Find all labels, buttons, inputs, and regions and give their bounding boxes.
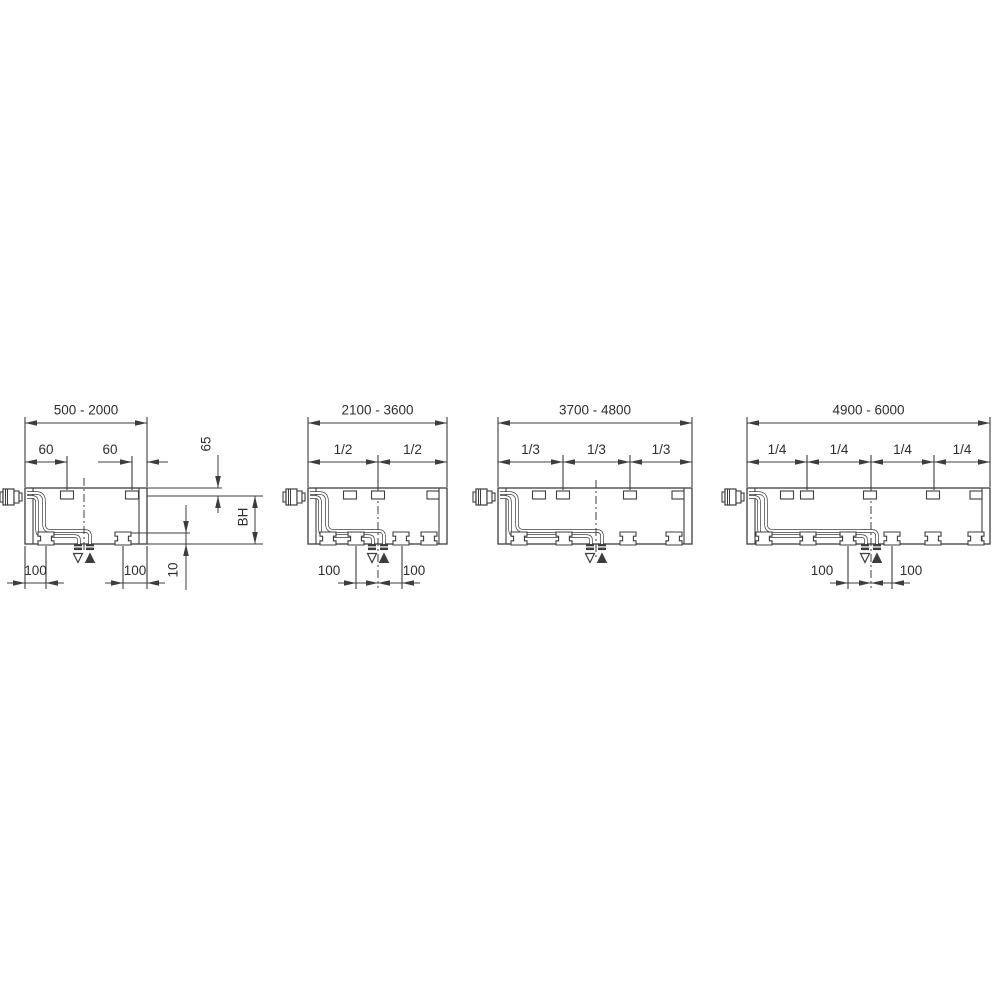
dimension-arrow — [366, 580, 378, 586]
flow-direction-icon — [86, 554, 95, 563]
fraction-label: 1/4 — [953, 442, 972, 457]
dimension-arrow — [978, 459, 990, 465]
dimension-arrow — [55, 459, 67, 465]
mounting-foot — [320, 532, 336, 545]
dimension-arrow — [215, 476, 221, 488]
wall-bracket — [61, 491, 74, 499]
wall-bracket-end — [970, 491, 982, 499]
dimension-arrow — [551, 459, 563, 465]
connection-stub — [873, 548, 881, 551]
dimension-arrow — [498, 459, 510, 465]
dimension-arrow — [344, 580, 356, 586]
connection-stub — [86, 548, 94, 551]
dimension-arrow — [859, 580, 871, 586]
mounting-foot — [756, 532, 772, 545]
dimension-arrow — [836, 580, 848, 586]
wall-bracket — [126, 491, 139, 499]
flow-direction-icon — [873, 554, 882, 563]
sub-dimension-label: 60 — [102, 442, 117, 457]
range-label: 2100 - 3600 — [341, 403, 413, 418]
connection-stub — [586, 548, 594, 551]
fraction-label: 1/2 — [403, 442, 422, 457]
bottom-dimension-label: 100 — [318, 563, 341, 578]
fraction-label: 1/4 — [768, 442, 787, 457]
dimension-arrow — [366, 459, 378, 465]
dimension-arrow — [618, 459, 630, 465]
mounting-foot — [38, 532, 54, 545]
connection-stub — [74, 548, 82, 551]
dimension-arrow — [795, 459, 807, 465]
mounting-foot — [800, 532, 816, 545]
range-label: 500 - 2000 — [54, 403, 119, 418]
mounting-foot — [556, 532, 572, 545]
mounting-foot — [393, 532, 409, 545]
dimension-arrow — [978, 420, 990, 426]
wall-bracket — [927, 491, 940, 499]
connection-stub — [861, 544, 869, 546]
return-direction-icon — [368, 554, 377, 563]
side-dimension-label: 65 — [199, 436, 214, 451]
diagram-length-3700-4800: 3700 - 48001/31/31/3 — [473, 403, 692, 563]
dimension-arrow — [183, 544, 189, 556]
dimension-arrow — [25, 459, 37, 465]
side-dimension-label: 10 — [166, 562, 181, 577]
connection-stub — [598, 544, 606, 546]
dimension-arrow — [435, 459, 447, 465]
range-label: 4900 - 6000 — [832, 403, 904, 418]
radiator-dimension-diagram: 500 - 2000606010010065BH102100 - 36001/2… — [0, 0, 1000, 1000]
fraction-label: 1/4 — [830, 442, 849, 457]
fraction-label: 1/4 — [893, 442, 912, 457]
fraction-label: 1/3 — [652, 442, 671, 457]
dimension-arrow — [498, 420, 510, 426]
flow-direction-icon — [598, 554, 607, 563]
dimension-arrow — [25, 420, 37, 426]
valve-assembly-icon — [473, 489, 495, 505]
dimension-arrow — [892, 580, 904, 586]
return-direction-icon — [586, 554, 595, 563]
connection-stub — [380, 544, 388, 546]
wall-bracket-end — [672, 491, 684, 499]
dimension-arrow — [46, 580, 58, 586]
dimension-arrow — [859, 459, 871, 465]
dimension-arrow — [215, 496, 221, 508]
mounting-foot — [840, 532, 856, 545]
dimension-arrow — [308, 420, 320, 426]
wall-bracket-end — [427, 491, 439, 499]
fraction-label: 1/3 — [587, 442, 606, 457]
dimension-arrow — [563, 459, 575, 465]
dimension-arrow — [135, 420, 147, 426]
mounting-foot — [421, 532, 437, 545]
wall-bracket — [864, 491, 877, 499]
diagram-length-4900-6000: 4900 - 60001/41/41/41/4100100 — [722, 403, 990, 589]
dimension-arrow — [147, 580, 159, 586]
fraction-label: 1/3 — [521, 442, 540, 457]
mounting-foot — [511, 532, 527, 545]
sub-dimension-label: 60 — [38, 442, 53, 457]
dimension-arrow — [630, 459, 642, 465]
dimension-arrow — [378, 459, 390, 465]
fraction-label: 1/2 — [334, 442, 353, 457]
connection-stub — [380, 548, 388, 551]
valve-assembly-icon — [722, 489, 744, 505]
dimension-arrow — [252, 496, 258, 508]
valve-assembly-icon — [283, 489, 305, 505]
dimension-arrow — [680, 420, 692, 426]
wall-bracket — [781, 491, 794, 499]
wall-bracket — [624, 491, 637, 499]
bottom-dimension-label: 100 — [900, 563, 923, 578]
dimension-arrow — [147, 459, 159, 465]
dimension-arrow — [871, 459, 883, 465]
connection-stub — [598, 548, 606, 551]
dimension-arrow — [747, 459, 759, 465]
valve-assembly-icon — [0, 489, 22, 505]
side-dimension-label: BH — [236, 508, 251, 527]
wall-bracket — [372, 491, 385, 499]
connection-stub — [368, 544, 376, 546]
bottom-dimension-label: 100 — [811, 563, 834, 578]
dimension-arrow — [252, 532, 258, 544]
mounting-foot — [115, 532, 131, 545]
bottom-dimension-label: 100 — [24, 563, 47, 578]
technical-drawing-page: 500 - 2000606010010065BH102100 - 36001/2… — [0, 0, 1000, 1000]
connection-stub — [368, 548, 376, 551]
mounting-foot — [620, 532, 636, 545]
flow-direction-icon — [380, 554, 389, 563]
dimension-arrow — [435, 420, 447, 426]
diagram-length-2100-3600: 2100 - 36001/21/2100100 — [283, 403, 447, 589]
mounting-foot — [666, 532, 682, 545]
connection-stub — [586, 544, 594, 546]
dimension-arrow — [120, 459, 132, 465]
mounting-foot — [925, 532, 941, 545]
diagram-length-500-2000: 500 - 2000606010010065BH10 — [0, 403, 263, 590]
bottom-dimension-label: 100 — [403, 563, 426, 578]
dimension-arrow — [402, 580, 414, 586]
dimension-arrow — [13, 580, 25, 586]
dimension-arrow — [807, 459, 819, 465]
mounting-foot — [968, 532, 984, 545]
mounting-foot — [884, 532, 900, 545]
mounting-foot — [348, 532, 364, 545]
dimension-arrow — [747, 420, 759, 426]
wall-bracket — [533, 491, 546, 499]
connection-stub — [86, 544, 94, 546]
wall-bracket — [557, 491, 570, 499]
return-direction-icon — [74, 554, 83, 563]
range-label: 3700 - 4800 — [559, 403, 631, 418]
dimension-arrow — [934, 459, 946, 465]
bottom-dimension-label: 100 — [124, 563, 147, 578]
dimension-arrow — [308, 459, 320, 465]
connection-stub — [873, 544, 881, 546]
dimension-arrow — [922, 459, 934, 465]
return-direction-icon — [861, 554, 870, 563]
wall-bracket — [344, 491, 357, 499]
dimension-arrow — [680, 459, 692, 465]
dimension-arrow — [183, 521, 189, 533]
dimension-arrow — [111, 580, 123, 586]
connection-stub — [861, 548, 869, 551]
connection-stub — [74, 544, 82, 546]
wall-bracket — [801, 491, 814, 499]
